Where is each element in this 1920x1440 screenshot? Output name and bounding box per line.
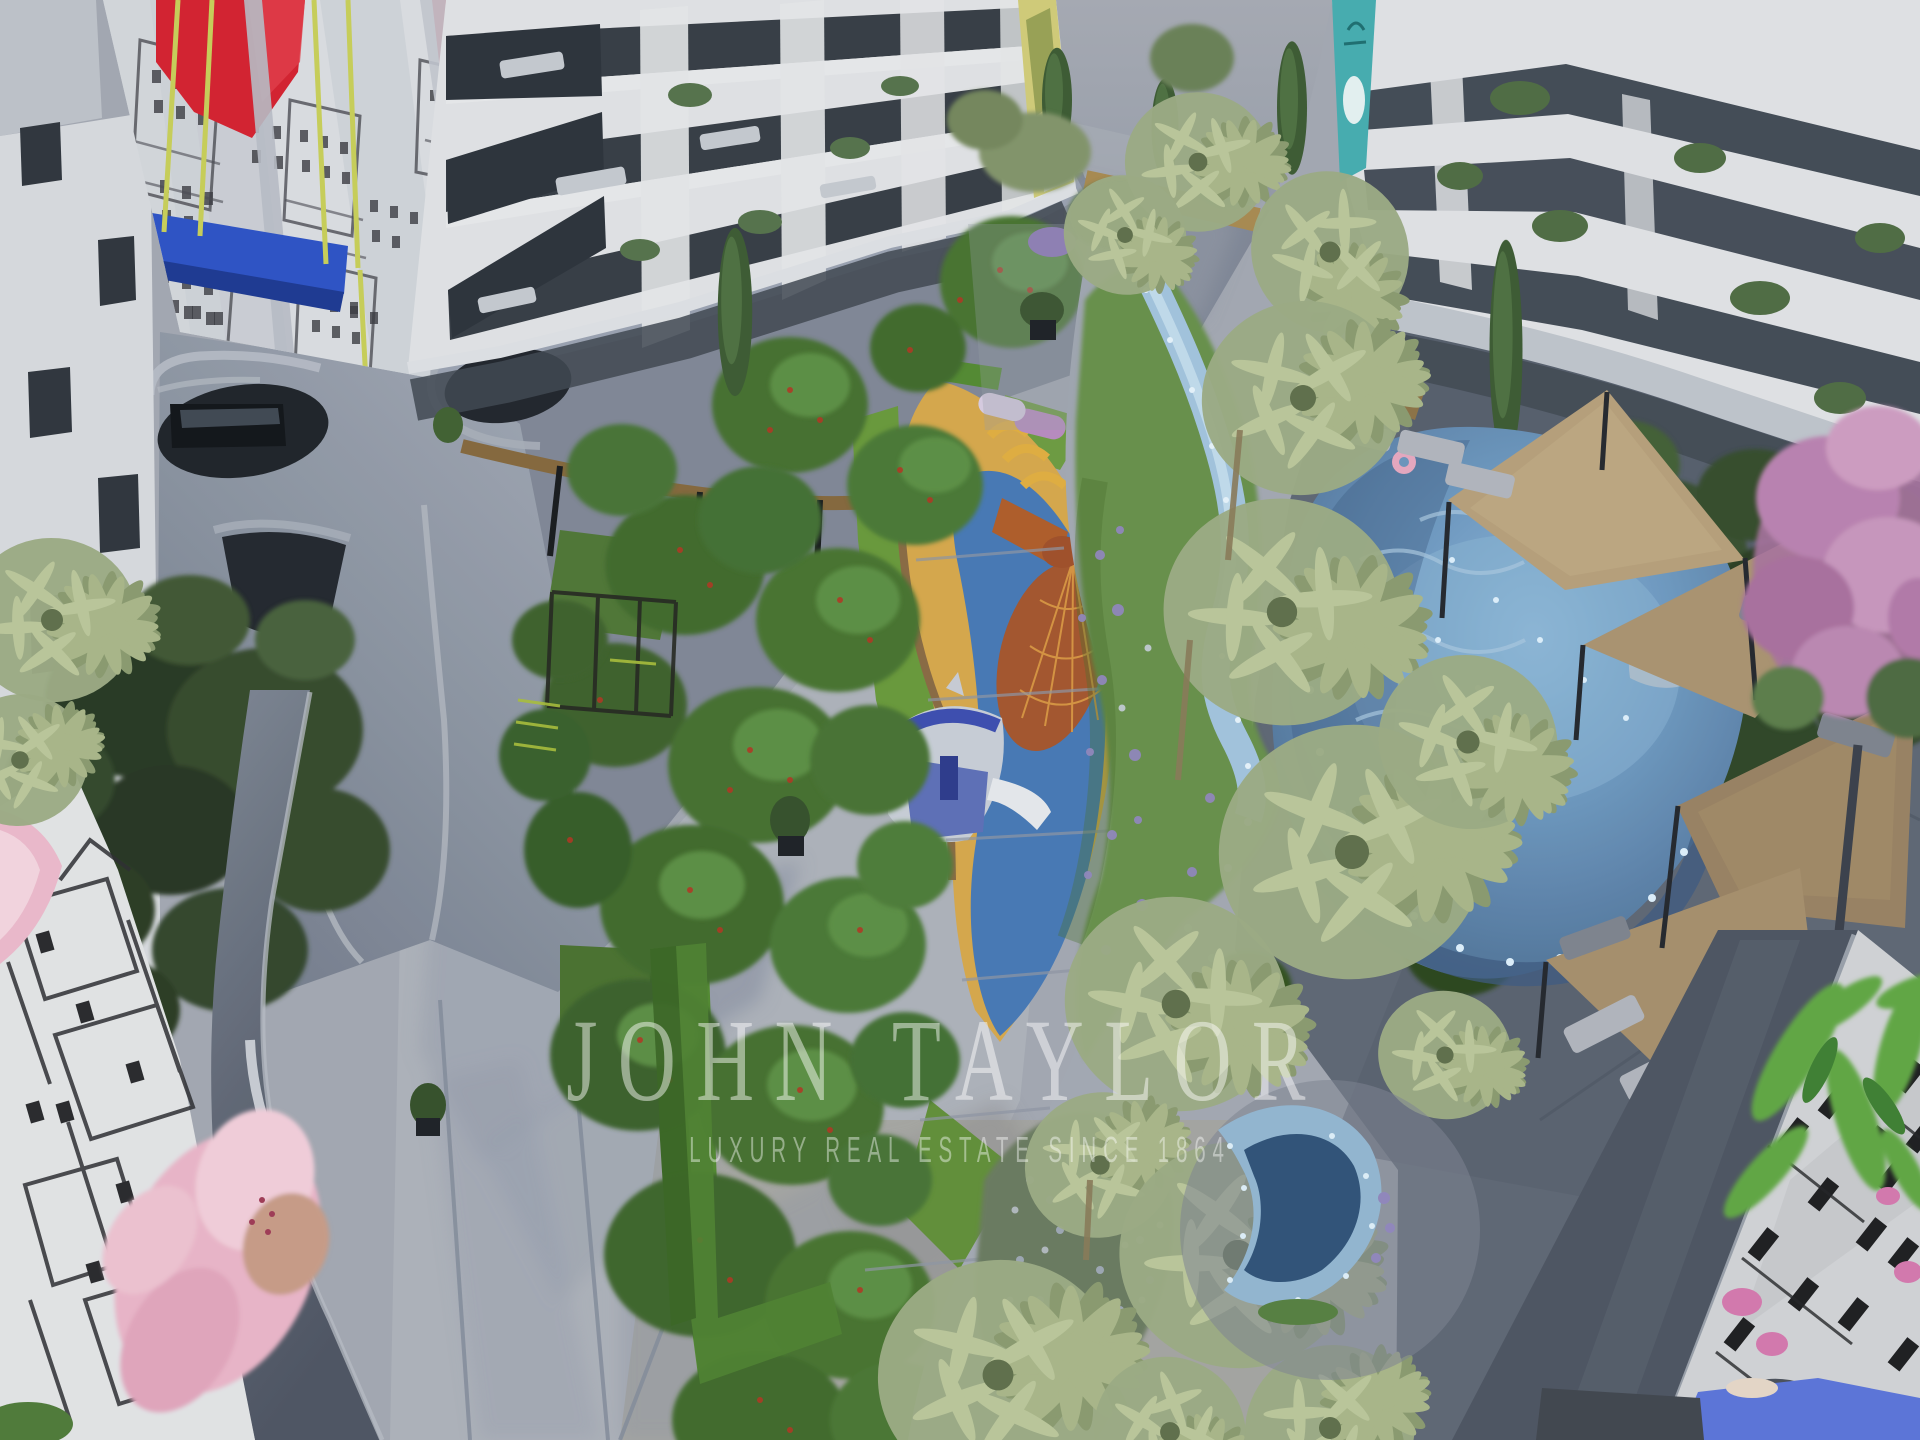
svg-text:JOHN TAYLOR: JOHN TAYLOR bbox=[566, 995, 1326, 1126]
svg-text:LUXURY REAL ESTATE SINCE 1864: LUXURY REAL ESTATE SINCE 1864 bbox=[689, 1130, 1231, 1171]
